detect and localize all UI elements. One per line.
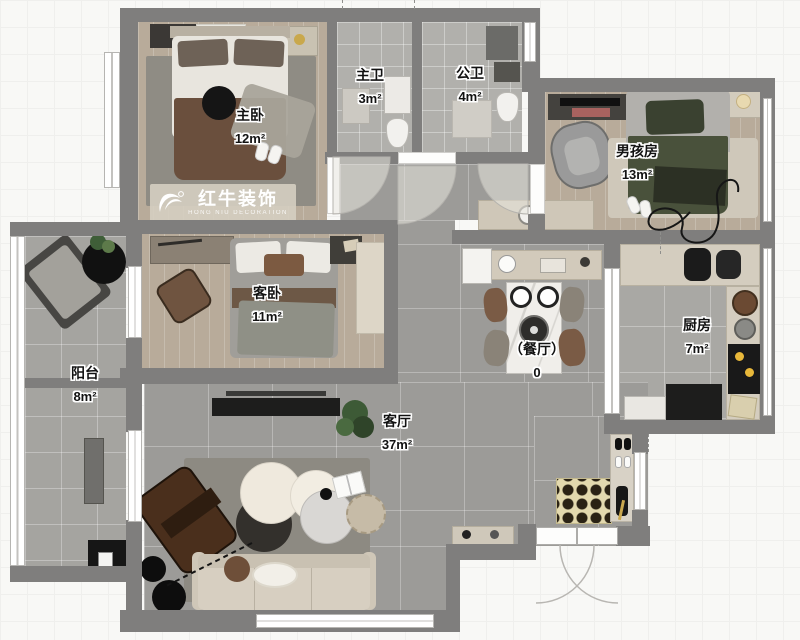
room-area: 3m² (325, 91, 415, 106)
tv-icon (226, 391, 326, 396)
window (524, 22, 536, 62)
tv-console (212, 398, 340, 416)
dash-tick (414, 0, 415, 9)
shower-icon (486, 26, 518, 60)
wall (612, 420, 775, 434)
wall (384, 234, 398, 382)
sofa-pillow-fluffy (252, 562, 298, 588)
room-area: 8m² (40, 389, 130, 404)
room-area: 13m² (592, 167, 682, 182)
pot-icon (732, 290, 758, 316)
wall (120, 8, 540, 22)
decor-icon (490, 530, 499, 539)
wall (126, 234, 142, 268)
room-label-balcony: 阳台 8m² (40, 366, 130, 404)
room-name: 客厅 (352, 414, 442, 429)
lamp-icon (294, 34, 305, 45)
wall (120, 368, 398, 384)
brand-text: 红牛装饰 HONG NIU DECORATION (186, 190, 290, 216)
room-area: 4m² (425, 89, 515, 104)
master-pillow (233, 39, 284, 68)
doormat (556, 478, 612, 524)
room-label-living-room: 客厅 37m² (352, 414, 442, 452)
pouf (346, 494, 386, 534)
shower-tray (452, 100, 492, 138)
dash-tick (660, 232, 661, 254)
room-label-public-bath: 公卫 4m² (425, 66, 515, 104)
balcony-cabinet (84, 438, 104, 504)
room-name: 客卧 (222, 286, 312, 301)
decor-icon (462, 530, 471, 539)
shoe-icon (615, 456, 622, 468)
balcony-sliding-door (128, 430, 142, 522)
desk-screen-glow (572, 108, 610, 117)
shoe-icon (615, 438, 622, 450)
window (104, 52, 120, 188)
floor-plan: 红牛装饰 HONG NIU DECORATION 主卧 12m² 主卫 3m² … (0, 0, 800, 640)
master-pillow (177, 39, 228, 68)
balcony-window (10, 236, 25, 566)
entry-door-panel (536, 527, 577, 545)
plate-icon (537, 286, 559, 308)
room-label-master-bedroom: 主卧 12m² (205, 108, 295, 146)
window (634, 452, 646, 510)
plant-icon (102, 240, 115, 253)
wall (456, 152, 540, 164)
washer-door-icon (98, 552, 113, 567)
hallway-floor2 (396, 220, 455, 246)
window (128, 266, 142, 338)
rice-cooker-icon (716, 250, 741, 279)
room-name: 阳台 (40, 366, 130, 381)
wall (10, 222, 128, 236)
wall (616, 526, 650, 546)
plate-icon (510, 286, 532, 308)
flame-icon (745, 368, 754, 377)
decor-icon (320, 488, 332, 500)
room-label-kitchen: 厨房 7m² (652, 318, 742, 356)
room-label-guest-bedroom: 客卧 11m² (222, 286, 312, 324)
brand-name: 红牛装饰 (186, 190, 290, 208)
room-name: （餐厅） (492, 342, 582, 357)
wall (535, 78, 775, 92)
room-area: 12m² (205, 131, 295, 146)
door-opening (327, 157, 340, 214)
brand-watermark: 红牛装饰 HONG NIU DECORATION (150, 184, 296, 222)
wall (120, 220, 398, 234)
tray-icon (540, 258, 566, 273)
plate-icon (498, 255, 516, 273)
sofa-pillow-round (224, 556, 250, 582)
cutting-board (728, 394, 758, 420)
dash-tick (648, 434, 649, 452)
shoe-icon (624, 456, 631, 468)
kitchen-sliding-door (604, 268, 620, 414)
boys-pillow (645, 99, 704, 135)
room-area: 37m² (352, 437, 442, 452)
guest-pillow-brown (264, 254, 304, 276)
room-name: 厨房 (652, 318, 742, 333)
room-area: 7m² (652, 341, 742, 356)
window (763, 98, 772, 222)
shoe-icon (624, 438, 631, 450)
room-label-dining: （餐厅） 0 (492, 342, 582, 380)
room-name: 男孩房 (592, 144, 682, 159)
wall (632, 434, 648, 454)
wall (10, 566, 132, 582)
decor-icon (580, 257, 590, 267)
wall (452, 230, 775, 244)
kitchen-counter-bottom (666, 384, 722, 420)
monitor-icon (560, 98, 620, 106)
floor-lamp-base (140, 556, 166, 582)
room-name: 主卫 (325, 68, 415, 83)
wall (518, 524, 536, 546)
guest-wardrobe (356, 242, 386, 334)
room-area: 0 (492, 365, 582, 380)
room-area: 11m² (222, 309, 312, 324)
wall (448, 544, 536, 560)
sink-icon (624, 396, 666, 420)
entry-door-panel (577, 527, 618, 545)
room-label-master-bath: 主卫 3m² (325, 68, 415, 106)
wall (120, 8, 138, 234)
centerpiece-dot (530, 326, 538, 334)
rice-cooker-icon (684, 248, 711, 281)
fridge (462, 248, 492, 284)
wall (126, 520, 142, 612)
brand-logo-icon (156, 188, 186, 218)
entry-door-arc (536, 545, 594, 603)
room-name: 公卫 (425, 66, 515, 81)
entry-door-arc (560, 545, 618, 603)
window (256, 614, 434, 628)
wall (604, 244, 620, 268)
floor-lamp-shade (152, 580, 186, 614)
lamp-icon (736, 94, 751, 109)
dash-tick (342, 0, 343, 9)
room-label-boys-room: 男孩房 13m² (592, 144, 682, 182)
window (763, 248, 772, 416)
door-opening (398, 152, 456, 164)
brand-subtitle: HONG NIU DECORATION (186, 210, 290, 216)
brand-logo-r-icon (179, 192, 184, 197)
brand-logo-path (159, 194, 182, 212)
room-name: 主卧 (205, 108, 295, 123)
door-opening (530, 164, 545, 214)
